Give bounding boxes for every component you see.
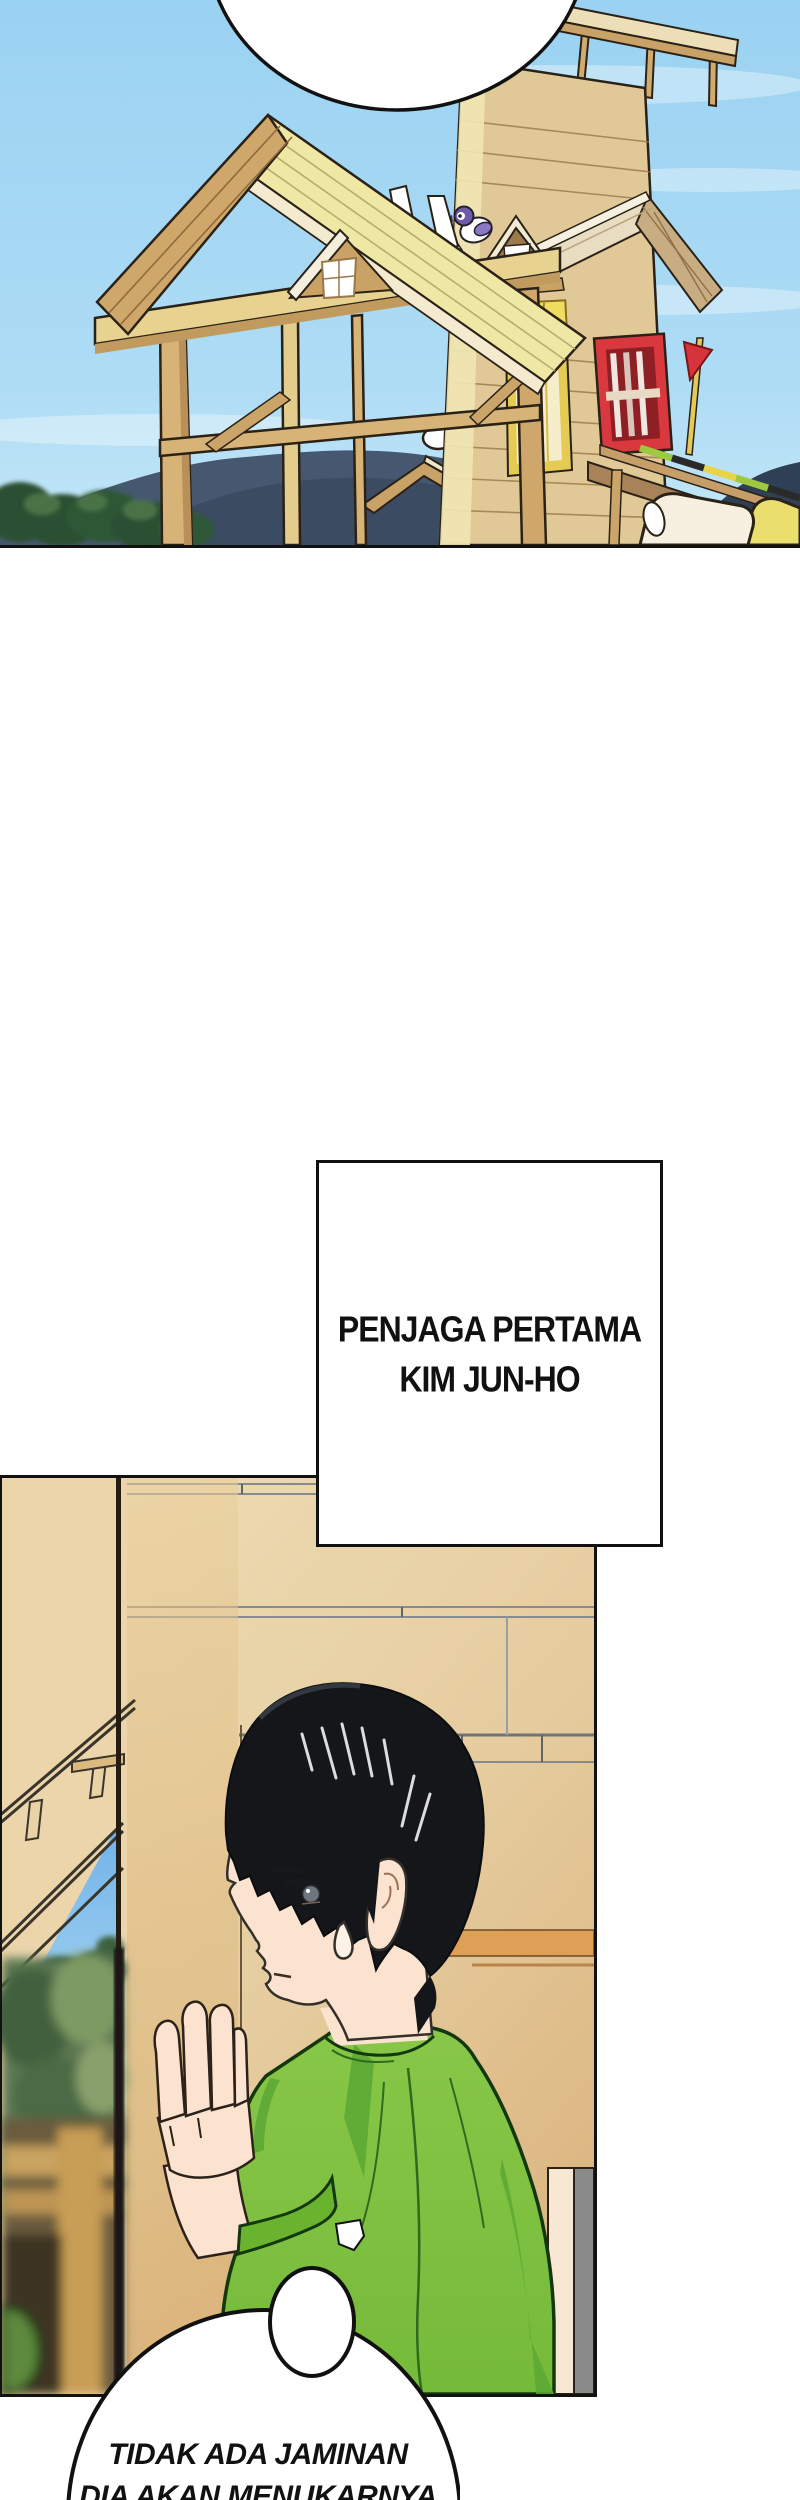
panel-playground-scene — [0, 0, 800, 548]
bubble-text-line1: TIDAK ADA JAMINAN — [108, 2438, 409, 2471]
wood-post — [120, 1478, 238, 2394]
finger-ring — [210, 2005, 235, 2110]
caption-box: PENJAGA PERTAMA KIM JUN-HO — [316, 1160, 663, 1547]
webtoon-page: PENJAGA PERTAMA KIM JUN-HO — [0, 0, 800, 2500]
bubble-merge-patch — [278, 2318, 342, 2366]
bubble-dome — [68, 2310, 460, 2500]
speech-bubble-shape: TIDAK ADA JAMINAN DIA AKAN MENUKARNYA — [60, 2258, 460, 2500]
background-rail — [440, 1930, 594, 1956]
speech-bubble-bottom: TIDAK ADA JAMINAN DIA AKAN MENUKARNYA — [60, 2258, 460, 2500]
caption-text: PENJAGA PERTAMA KIM JUN-HO — [338, 1303, 641, 1403]
finger-pinky — [234, 2028, 248, 2106]
red-window — [594, 334, 672, 455]
caption-line2: KIM JUN-HO — [338, 1354, 641, 1404]
eye-iris — [303, 1886, 320, 1903]
finger-middle — [182, 2002, 211, 2116]
bubble-text-line2: DIA AKAN MENUKARNYA — [79, 2480, 437, 2500]
boy-illustration — [2, 1478, 594, 2394]
playground-illustration — [0, 0, 800, 545]
caption-line1: PENJAGA PERTAMA — [338, 1303, 641, 1353]
